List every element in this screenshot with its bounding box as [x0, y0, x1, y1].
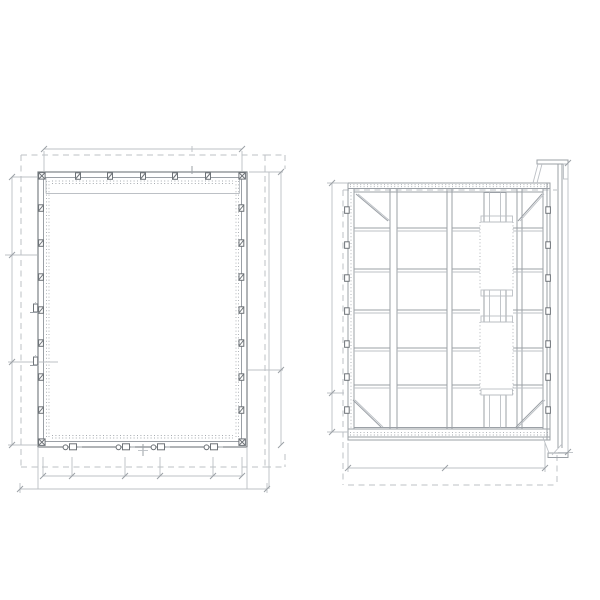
edge-clip: [345, 207, 350, 214]
member-outline: [484, 290, 506, 322]
member-outline: [38, 172, 247, 447]
panel-technical-drawing: [0, 0, 600, 600]
edge-clip: [345, 242, 350, 249]
member-outline: [484, 395, 506, 428]
cad-drawing-canvas: [0, 0, 600, 600]
side-latch-handle: [34, 357, 38, 365]
edge-clip: [546, 341, 551, 348]
edge-clip: [546, 207, 551, 214]
edge-clip: [546, 407, 551, 414]
corner-brace: [520, 194, 544, 221]
edge-clip: [345, 374, 350, 381]
edge-clip: [345, 275, 350, 282]
corner-brace: [516, 400, 543, 427]
bottom-latch: [204, 445, 209, 450]
member-line: [533, 164, 538, 183]
member-outline: [537, 160, 568, 164]
edge-clip: [546, 374, 551, 381]
member-outline: [481, 216, 513, 222]
corner-brace: [356, 194, 388, 221]
member-outline: [481, 316, 513, 322]
side-latch-handle: [34, 304, 38, 312]
bottom-latch: [116, 445, 121, 450]
edge-clip: [345, 341, 350, 348]
bottom-latch: [123, 444, 130, 450]
bottom-latch: [211, 444, 218, 450]
bottom-latch: [158, 444, 165, 450]
member-outline: [481, 290, 513, 296]
member-outline: [484, 193, 506, 223]
member-outline: [348, 183, 550, 440]
front-elevation-view: [5, 146, 285, 493]
member-line: [537, 164, 542, 183]
corner-brace: [358, 194, 390, 221]
bottom-latch: [151, 445, 156, 450]
bottom-latch: [63, 445, 68, 450]
member-outline: [548, 453, 568, 458]
edge-clip: [546, 275, 551, 282]
rear-framing-view: [327, 160, 573, 485]
edge-clip: [345, 308, 350, 315]
member-outline: [481, 389, 513, 395]
edge-clip: [546, 308, 551, 315]
edge-clip: [345, 407, 350, 414]
corner-brace: [355, 400, 383, 427]
edge-clip: [546, 242, 551, 249]
bottom-latch: [70, 444, 77, 450]
member-outline: [564, 164, 569, 179]
corner-brace: [353, 400, 381, 427]
member-outline: [44, 178, 242, 442]
